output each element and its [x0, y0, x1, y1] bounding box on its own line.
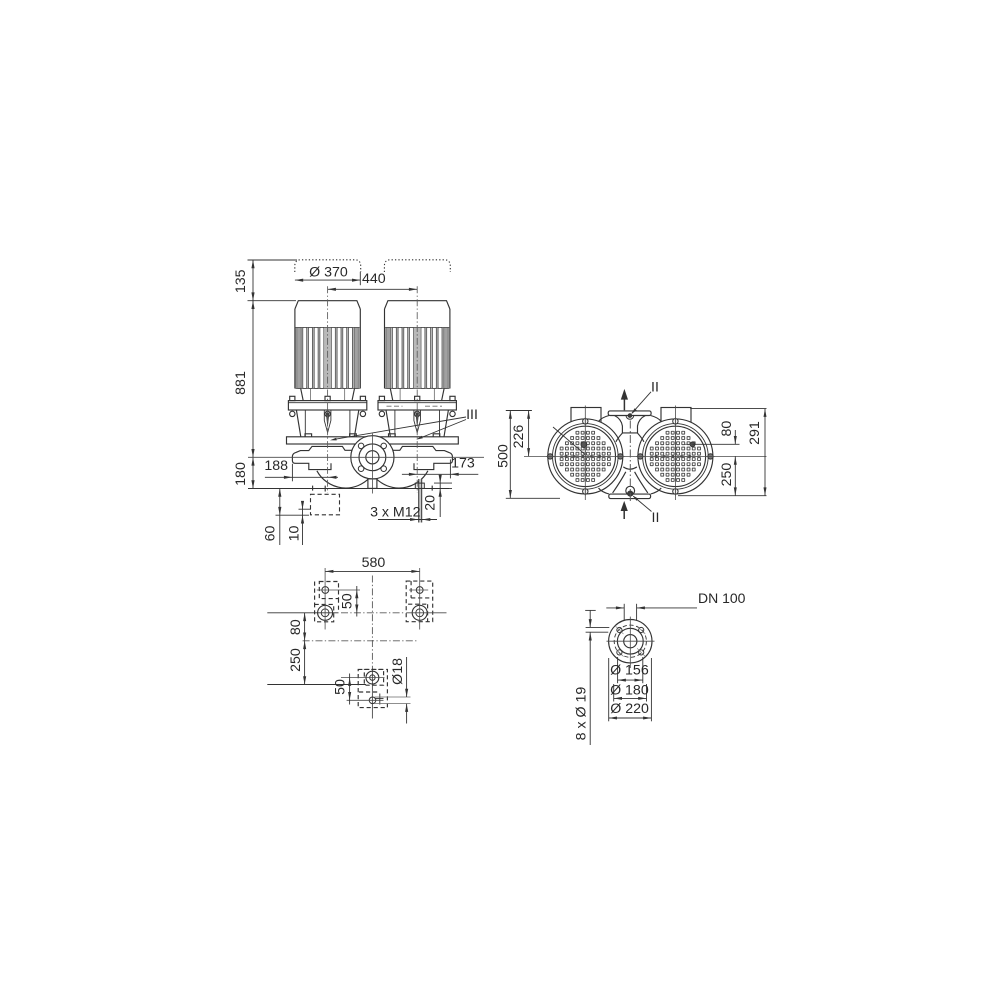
svg-text:173: 173: [451, 455, 475, 471]
svg-text:60: 60: [262, 526, 278, 542]
svg-text:III: III: [466, 407, 478, 423]
svg-text:250: 250: [288, 648, 304, 672]
svg-text:135: 135: [233, 269, 249, 293]
svg-text:50: 50: [333, 679, 349, 695]
svg-text:226: 226: [511, 425, 527, 449]
svg-text:Ø 156: Ø 156: [610, 663, 649, 679]
svg-text:II: II: [651, 379, 659, 395]
svg-text:50: 50: [339, 593, 355, 609]
svg-text:Ø18: Ø18: [390, 658, 406, 685]
svg-text:10: 10: [286, 526, 302, 542]
svg-text:3 x M12: 3 x M12: [370, 504, 421, 520]
svg-text:Ø 220: Ø 220: [610, 701, 649, 717]
svg-text:8 x Ø 19: 8 x Ø 19: [573, 687, 589, 741]
svg-text:80: 80: [719, 421, 735, 437]
svg-text:291: 291: [747, 421, 763, 445]
svg-text:Ø 370: Ø 370: [309, 264, 348, 280]
svg-text:250: 250: [719, 463, 735, 487]
svg-text:881: 881: [233, 371, 249, 395]
svg-text:DN 100: DN 100: [698, 590, 746, 606]
svg-text:Ø 180: Ø 180: [610, 683, 649, 699]
svg-text:580: 580: [362, 555, 386, 571]
svg-text:180: 180: [233, 462, 249, 486]
svg-text:500: 500: [495, 444, 511, 468]
svg-text:II: II: [652, 510, 660, 526]
svg-text:440: 440: [362, 271, 386, 287]
svg-text:80: 80: [288, 619, 304, 635]
svg-text:20: 20: [423, 495, 439, 511]
svg-text:188: 188: [264, 458, 288, 474]
